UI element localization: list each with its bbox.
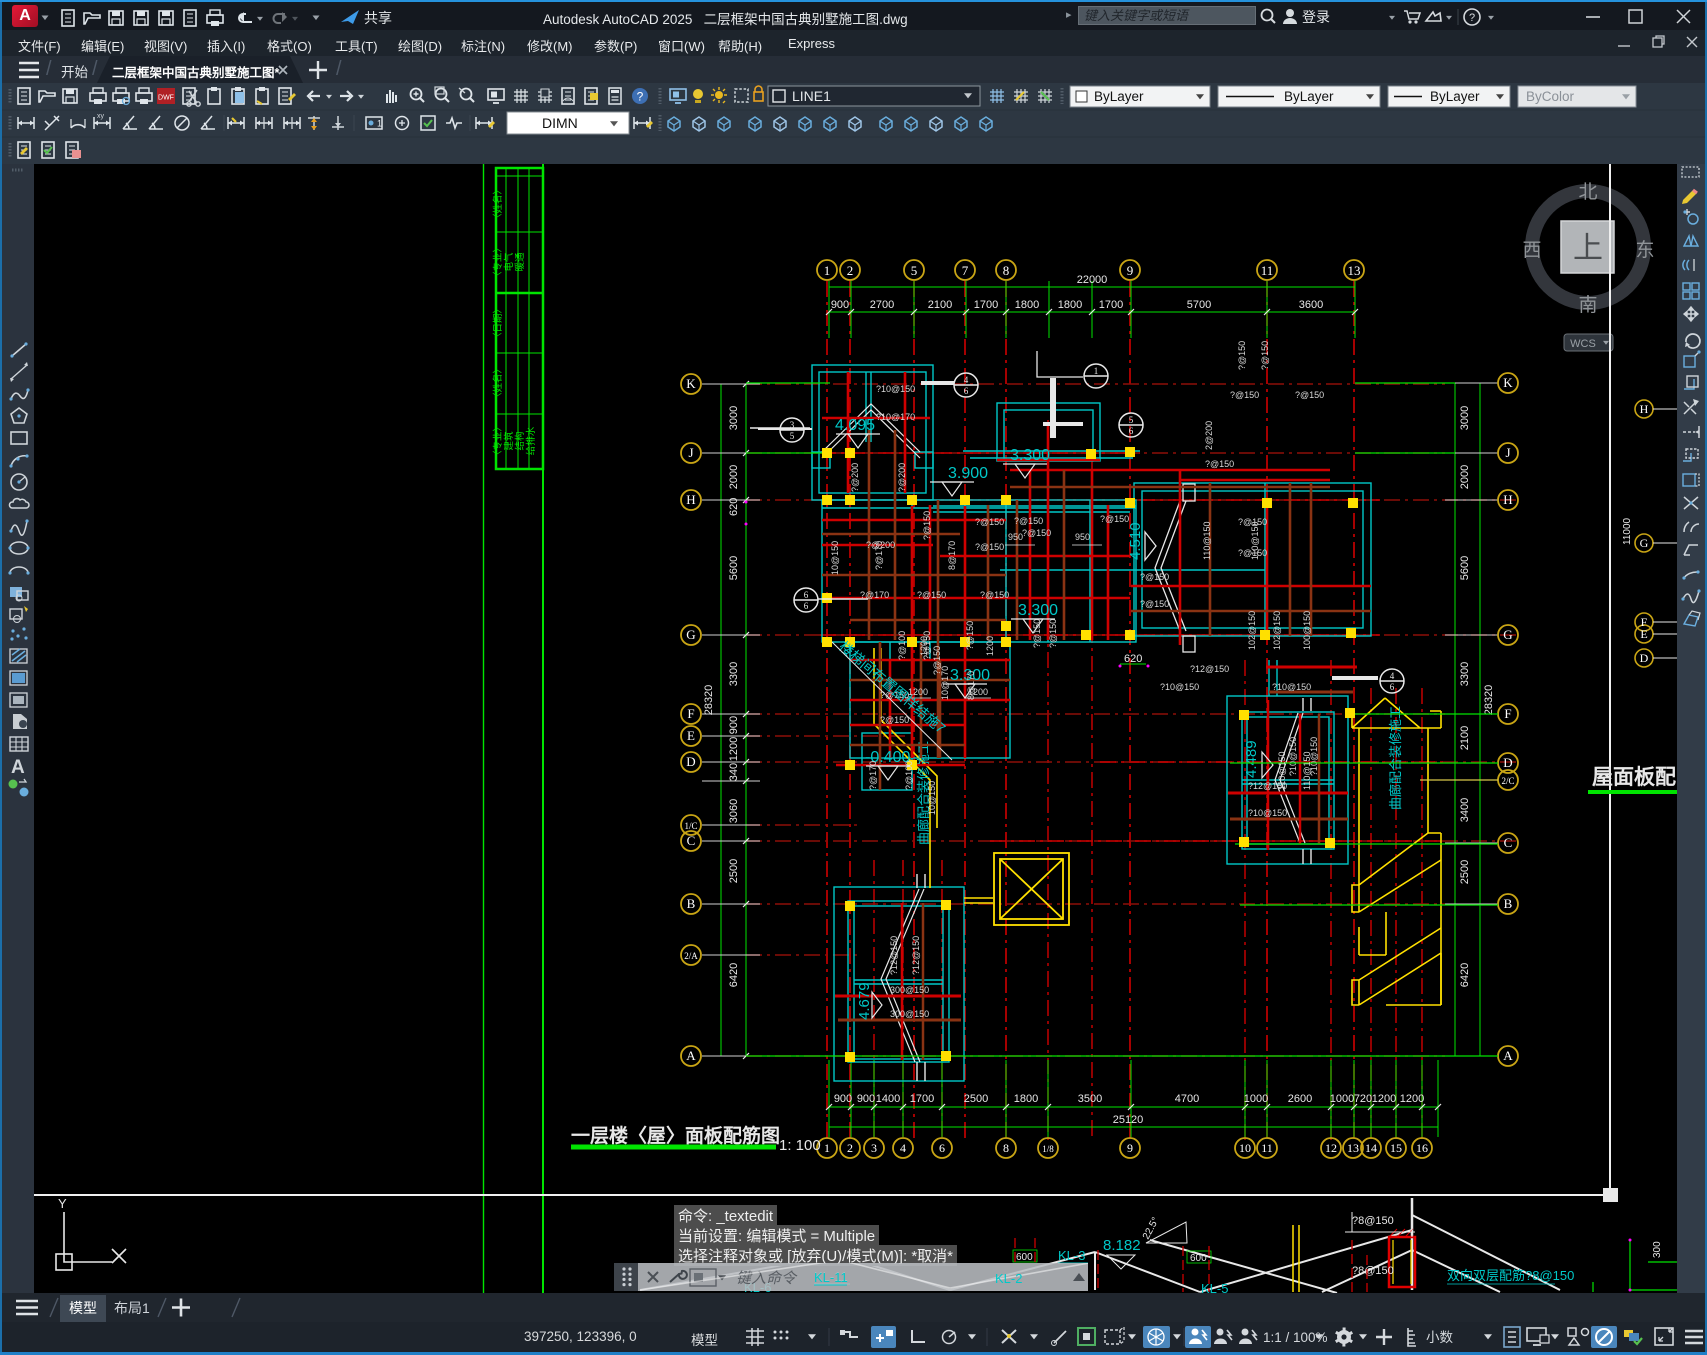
svg-text:1200: 1200 [968, 687, 988, 697]
svg-text:5600: 5600 [1459, 556, 1471, 580]
svg-text:?@100: ?@100 [897, 631, 907, 660]
svg-text:900: 900 [857, 1093, 875, 1105]
svg-text:11: 11 [1261, 1141, 1273, 1155]
svg-text:?@150: ?@150 [965, 621, 975, 650]
svg-text:28320: 28320 [703, 685, 715, 716]
svg-text:?@150: ?@150 [980, 590, 1009, 600]
svg-text:xy: xy [97, 113, 105, 120]
svg-text:D: D [1503, 755, 1512, 770]
svg-text:屋面板配: 屋面板配 [1592, 766, 1676, 789]
svg-text:300@150: 300@150 [890, 985, 929, 995]
svg-text:G: G [1503, 627, 1512, 642]
svg-text:3300: 3300 [1459, 662, 1471, 686]
svg-text:102@150: 102@150 [1272, 611, 1282, 650]
svg-text:4.679: 4.679 [856, 982, 873, 1020]
svg-text:J: J [688, 445, 693, 460]
svg-text:2500: 2500 [728, 859, 740, 883]
svg-text:900: 900 [728, 716, 740, 734]
svg-text:电气: 电气 [503, 252, 515, 272]
svg-text:〈专业〉: 〈专业〉 [492, 422, 504, 460]
svg-text:KL-5: KL-5 [1201, 1281, 1228, 1293]
svg-text:300@150: 300@150 [890, 1009, 929, 1019]
svg-text:6: 6 [939, 1141, 945, 1155]
svg-text:15: 15 [1390, 1141, 1402, 1155]
svg-text:?@150: ?@150 [1140, 572, 1169, 582]
svg-text:6: 6 [804, 601, 809, 611]
svg-text:F: F [1504, 706, 1511, 721]
svg-text:1700: 1700 [974, 299, 998, 311]
svg-text:25120: 25120 [1113, 1114, 1144, 1126]
svg-text:2: 2 [847, 1141, 853, 1155]
svg-text:1200: 1200 [985, 636, 995, 656]
svg-text:双向双层配筋?8@150: 双向双层配筋?8@150 [1447, 1268, 1574, 1283]
svg-text:C: C [1504, 835, 1513, 850]
svg-text:1700: 1700 [1099, 299, 1123, 311]
svg-text:?10@170: ?10@170 [876, 412, 915, 422]
svg-text:7: 7 [962, 263, 969, 278]
svg-text:登录: 登录 [1302, 9, 1330, 25]
svg-text:H: H [686, 492, 695, 507]
svg-text:900: 900 [834, 1093, 852, 1105]
svg-text:?@200: ?@200 [850, 463, 860, 492]
svg-text:1200: 1200 [728, 737, 740, 761]
svg-text:?@170: ?@170 [860, 590, 889, 600]
svg-text:1000: 1000 [1244, 1093, 1268, 1105]
svg-text:〈专业〉: 〈专业〉 [492, 243, 504, 281]
svg-text:ByLayer: ByLayer [1430, 89, 1480, 104]
svg-text:2: 2 [847, 263, 854, 278]
svg-text:G: G [1640, 536, 1649, 550]
svg-text:2700: 2700 [870, 299, 894, 311]
svg-text:1200: 1200 [919, 636, 929, 656]
svg-text:3060: 3060 [728, 799, 740, 823]
svg-text:?8@150: ?8@150 [1352, 1265, 1394, 1277]
svg-text:B: B [1504, 896, 1513, 911]
svg-text:2/A: 2/A [684, 951, 698, 961]
svg-text:DWF: DWF [158, 95, 174, 102]
svg-text:110@150: 110@150 [1202, 521, 1212, 560]
svg-text:13: 13 [1348, 263, 1361, 278]
svg-text:?10@150: ?10@150 [1288, 737, 1298, 776]
svg-text:5700: 5700 [1187, 299, 1211, 311]
svg-text:?@150: ?@150 [1260, 341, 1270, 370]
svg-text:一层楼〈屋〉面板配筋图: 一层楼〈屋〉面板配筋图 [571, 1124, 780, 1147]
svg-text:110@150: 110@150 [1250, 521, 1260, 560]
svg-text:720: 720 [1354, 1093, 1372, 1105]
svg-text:102@150: 102@150 [1247, 611, 1257, 650]
svg-text:4.489: 4.489 [1243, 740, 1260, 778]
svg-text:C: C [687, 833, 696, 848]
svg-text:?@150: ?@150 [1237, 341, 1247, 370]
svg-text:3.900: 3.900 [948, 465, 988, 482]
svg-text:?@150: ?@150 [1014, 516, 1043, 526]
svg-text:6: 6 [964, 386, 969, 396]
svg-text:22000: 22000 [1077, 274, 1108, 286]
svg-text:共享: 共享 [364, 10, 392, 26]
svg-text:DIMN: DIMN [542, 115, 578, 131]
svg-text:6: 6 [1129, 426, 1134, 436]
svg-text:E: E [1640, 627, 1647, 641]
svg-text:〈姓名〉: 〈姓名〉 [492, 185, 504, 223]
svg-text:1/8: 1/8 [1042, 1144, 1054, 1154]
svg-text:?10@150: ?10@150 [1160, 682, 1199, 692]
svg-text:3000: 3000 [1459, 406, 1471, 430]
svg-text:?12@150: ?12@150 [1190, 664, 1229, 674]
svg-text:100@150: 100@150 [1302, 611, 1312, 650]
svg-text:1: 1 [1094, 366, 1099, 376]
svg-text:WCS: WCS [1570, 338, 1596, 350]
svg-text:2100: 2100 [1459, 726, 1471, 750]
svg-text:?12@150: ?12@150 [911, 936, 921, 975]
svg-text:950: 950 [1075, 532, 1090, 542]
svg-text:8: 8 [1003, 263, 1010, 278]
svg-text:暖通: 暖通 [514, 252, 526, 272]
svg-text:6420: 6420 [728, 963, 740, 987]
svg-text:?@150: ?@150 [1100, 514, 1129, 524]
svg-text:?@100: ?@100 [904, 761, 914, 790]
svg-text:?@150: ?@150 [880, 715, 909, 725]
svg-text:2500: 2500 [964, 1093, 988, 1105]
svg-text:2000: 2000 [728, 465, 740, 489]
svg-text:B: B [687, 896, 696, 911]
svg-text:?@150: ?@150 [1032, 619, 1042, 648]
svg-text:6: 6 [804, 590, 809, 600]
svg-text:3000: 3000 [728, 406, 740, 430]
svg-text:?@150: ?@150 [1295, 390, 1324, 400]
svg-text:西: 西 [1522, 240, 1541, 261]
svg-text:110@150: 110@150 [1302, 751, 1312, 790]
svg-text:北: 北 [1578, 181, 1597, 203]
svg-text:1700: 1700 [910, 1093, 934, 1105]
svg-text:2@200: 2@200 [1204, 421, 1214, 450]
svg-text:2500: 2500 [1459, 860, 1471, 884]
svg-text:28320: 28320 [1483, 685, 1495, 716]
svg-text:Y: Y [58, 1196, 67, 1211]
svg-text:1800: 1800 [1058, 299, 1082, 311]
svg-text:K: K [1503, 375, 1513, 390]
svg-text:16: 16 [1416, 1141, 1428, 1155]
svg-text:600: 600 [1190, 1253, 1207, 1264]
svg-text:?@150: ?@150 [1205, 459, 1234, 469]
svg-text:1800: 1800 [1015, 299, 1039, 311]
svg-text:G: G [686, 627, 695, 642]
svg-text:E: E [687, 728, 695, 743]
svg-text:6420: 6420 [1459, 963, 1471, 987]
svg-text:曲廊配合装修施工: 曲廊配合装修施工 [1388, 706, 1403, 810]
svg-text:3500: 3500 [1078, 1093, 1102, 1105]
svg-text:K: K [686, 376, 696, 391]
svg-text:4: 4 [1390, 671, 1395, 681]
svg-text:ByLayer: ByLayer [1094, 89, 1144, 104]
svg-text:?: ? [637, 90, 644, 104]
svg-text:1800: 1800 [1014, 1093, 1038, 1105]
svg-text:KL-2: KL-2 [995, 1271, 1022, 1286]
svg-text:2600: 2600 [1288, 1093, 1312, 1105]
svg-text:10: 10 [1239, 1141, 1251, 1155]
svg-text:4.510: 4.510 [1127, 522, 1144, 560]
svg-text:?10@150: ?10@150 [876, 384, 915, 394]
svg-text:4: 4 [900, 1141, 906, 1155]
svg-text:10@150: 10@150 [927, 781, 937, 815]
svg-text:2000: 2000 [1459, 465, 1471, 489]
svg-text:?: ? [1469, 12, 1475, 24]
svg-text:13: 13 [1347, 1141, 1359, 1155]
svg-text:?@150: ?@150 [917, 590, 946, 600]
svg-text:建筑: 建筑 [503, 431, 515, 451]
svg-text:1: 100: 1: 100 [779, 1137, 821, 1154]
svg-text:?@150: ?@150 [922, 511, 932, 540]
svg-text:ByLayer: ByLayer [1284, 89, 1334, 104]
svg-text:11000: 11000 [1622, 517, 1633, 545]
svg-text:5600: 5600 [728, 556, 740, 580]
svg-text:给排水: 给排水 [525, 426, 537, 455]
svg-text:620: 620 [1124, 653, 1142, 665]
svg-text:?@200: ?@200 [897, 463, 907, 492]
svg-text:6: 6 [1390, 682, 1395, 692]
svg-text:?10@150: ?10@150 [1272, 682, 1311, 692]
svg-text:ByColor: ByColor [1526, 89, 1575, 104]
svg-text:620: 620 [728, 498, 740, 516]
svg-text:3: 3 [871, 1141, 877, 1155]
svg-text:?@150: ?@150 [1022, 528, 1051, 538]
svg-text:2/C: 2/C [1501, 776, 1514, 786]
svg-text:10@170: 10@170 [940, 666, 950, 700]
svg-text:?@170: ?@170 [874, 541, 884, 570]
svg-text:3: 3 [790, 420, 795, 430]
svg-text:14: 14 [1365, 1141, 1377, 1155]
svg-text:J: J [1505, 445, 1510, 460]
svg-text:9: 9 [1127, 263, 1134, 278]
svg-text:12: 12 [1325, 1141, 1337, 1155]
svg-text:1400: 1400 [876, 1093, 900, 1105]
svg-text:东: 东 [1635, 239, 1654, 261]
svg-text:小数: 小数 [1426, 1330, 1454, 1345]
svg-text:110@150: 110@150 [1277, 751, 1287, 790]
svg-text:8: 8 [1003, 1141, 1009, 1155]
svg-text:600: 600 [1016, 1252, 1033, 1263]
svg-text:F: F [687, 706, 694, 721]
svg-text:?@150: ?@150 [1230, 390, 1259, 400]
svg-text:1/C: 1/C [684, 821, 697, 831]
svg-text:1: 1 [824, 263, 831, 278]
svg-text:?@150: ?@150 [1140, 599, 1169, 609]
svg-text:900: 900 [831, 299, 849, 311]
svg-text:1200: 1200 [1400, 1093, 1424, 1105]
svg-text:结构: 结构 [514, 431, 526, 450]
svg-text:3.300: 3.300 [1018, 602, 1058, 619]
svg-text:南: 南 [1578, 294, 1597, 316]
svg-text:9: 9 [1127, 1141, 1133, 1155]
svg-text:5: 5 [790, 431, 795, 441]
svg-text:10@150: 10@150 [830, 541, 840, 575]
svg-text:〈姓名〉: 〈姓名〉 [492, 364, 504, 402]
svg-text:300: 300 [1652, 1241, 1663, 1258]
svg-text:LINE1: LINE1 [792, 88, 831, 104]
svg-text:上: 上 [1573, 232, 1603, 265]
svg-text:950: 950 [1008, 532, 1023, 542]
svg-text:8.182: 8.182 [1103, 1237, 1141, 1254]
svg-text:A: A [1503, 1048, 1513, 1063]
svg-text:?10@150: ?10@150 [1248, 808, 1287, 818]
svg-text:4.095: 4.095 [835, 417, 875, 434]
svg-text:KL-3: KL-3 [1058, 1248, 1085, 1263]
svg-text:3300: 3300 [728, 662, 740, 686]
svg-text:4: 4 [964, 375, 969, 385]
svg-text:?@150: ?@150 [975, 542, 1004, 552]
svg-text:A: A [11, 757, 25, 778]
svg-text:A: A [686, 1048, 696, 1063]
svg-text:KL-11: KL-11 [814, 1270, 848, 1285]
svg-text:?@150: ?@150 [975, 517, 1004, 527]
svg-text:1000: 1000 [1330, 1093, 1354, 1105]
svg-text:11: 11 [1261, 263, 1274, 278]
svg-text:2100: 2100 [928, 299, 952, 311]
svg-text:3400: 3400 [1459, 798, 1471, 822]
svg-text:1: 1 [377, 119, 382, 129]
svg-text:1: 1 [824, 1141, 830, 1155]
svg-text:?8@150: ?8@150 [1352, 1215, 1394, 1227]
svg-text:3.300: 3.300 [1010, 447, 1050, 464]
svg-text:1200: 1200 [1372, 1093, 1396, 1105]
svg-text:〈日期〉: 〈日期〉 [493, 304, 504, 342]
svg-text:?@150: ?@150 [1048, 619, 1058, 648]
svg-text:D: D [1640, 651, 1649, 665]
svg-text:H: H [1640, 402, 1649, 416]
svg-text:?@170: ?@170 [868, 761, 878, 790]
svg-text:3600: 3600 [1299, 299, 1323, 311]
svg-text:8@170: 8@170 [947, 541, 957, 570]
svg-text:D: D [686, 754, 695, 769]
svg-text:340: 340 [728, 763, 740, 781]
svg-text:?12@150: ?12@150 [889, 936, 899, 975]
svg-text:4700: 4700 [1175, 1093, 1199, 1105]
svg-text:5: 5 [911, 263, 918, 278]
svg-text:5: 5 [1129, 415, 1134, 425]
svg-text:H: H [1503, 492, 1512, 507]
